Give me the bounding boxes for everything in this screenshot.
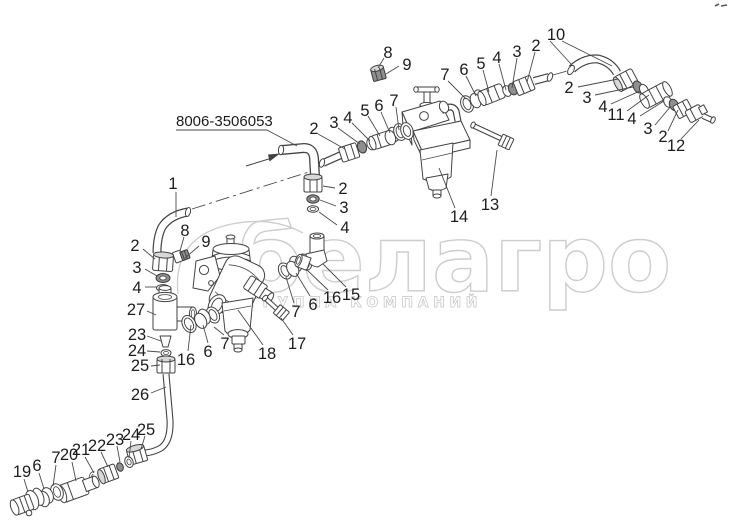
callout-8: 8: [383, 44, 392, 62]
callout-7: 7: [440, 66, 449, 84]
callout-9: 9: [201, 233, 210, 251]
leader-line-3: [655, 106, 671, 125]
leader-line-2: [578, 79, 618, 87]
callout-3: 3: [329, 114, 338, 132]
callout-7: 7: [220, 335, 229, 353]
part-number-label: 8006-3506053: [176, 113, 297, 146]
leader-line-3: [595, 87, 633, 95]
leader-line-7: [214, 327, 224, 335]
callout-4: 4: [627, 110, 636, 128]
callout-3: 3: [643, 120, 652, 138]
callout-3: 3: [132, 259, 141, 277]
corner-artifact: [715, 4, 727, 6]
callout-9: 9: [402, 56, 411, 74]
callout-16: 16: [177, 351, 195, 369]
callout-19: 19: [13, 463, 31, 481]
callout-6: 6: [374, 97, 383, 115]
leader-line-21: [85, 457, 94, 473]
leader-line-3: [338, 128, 360, 144]
top-elbow-assembly: [278, 145, 322, 212]
callout-2: 2: [531, 37, 540, 55]
callout-25: 25: [137, 421, 155, 439]
callout-4: 4: [340, 219, 349, 237]
leader-line-7: [53, 465, 56, 486]
leader-line-6: [39, 473, 44, 489]
leader-line-2: [668, 110, 678, 131]
leader-line-10: [550, 41, 571, 64]
part-number-text: 8006-3506053: [176, 113, 273, 130]
leader-line-13: [491, 150, 497, 196]
callout-11: 11: [607, 106, 624, 124]
leader-line-5: [368, 116, 380, 136]
leader-line-23: [147, 336, 161, 341]
callout-3: 3: [582, 89, 591, 107]
leader-line-24: [147, 351, 160, 352]
callout-4: 4: [132, 279, 141, 297]
callout-15: 15: [342, 286, 360, 304]
pipe-10: [566, 59, 617, 76]
leader-line-2: [323, 186, 335, 188]
leader-line-20: [72, 462, 76, 481]
leader-line-6: [381, 112, 390, 133]
callout-5: 5: [476, 55, 485, 73]
bolt-13: [470, 121, 514, 150]
leader-line-9: [386, 66, 399, 74]
callout-25: 25: [131, 357, 149, 375]
leader-line-2: [318, 134, 345, 149]
callout-22: 22: [88, 437, 106, 455]
callout-2: 2: [130, 237, 139, 255]
callout-6: 6: [459, 61, 468, 79]
plug-8-9: [370, 64, 386, 82]
callout-16: 16: [323, 289, 341, 307]
callout-6: 6: [308, 296, 317, 314]
callout-14: 14: [450, 208, 468, 226]
leader-line-6: [466, 76, 476, 96]
callout-13: 13: [481, 196, 499, 214]
callout-27: 27: [127, 301, 145, 319]
callout-2: 2: [338, 180, 347, 198]
callout-1: 1: [168, 175, 177, 193]
callout-4: 4: [343, 109, 352, 127]
callout-7: 7: [291, 303, 300, 321]
leader-line-4: [352, 123, 370, 141]
callout-6: 6: [203, 343, 212, 361]
callout-12: 12: [667, 137, 685, 155]
callout-4: 4: [598, 98, 607, 116]
leader-line-26: [151, 387, 166, 393]
callout-18: 18: [258, 345, 276, 363]
callout-2: 2: [309, 120, 318, 138]
flow-arrow: [246, 154, 280, 167]
callout-6: 6: [32, 457, 41, 475]
leader-line-7: [448, 81, 466, 99]
callout-2: 2: [564, 79, 573, 97]
fuel-filter-14: [399, 87, 470, 198]
parts-diagram: белагро ГРУППА КОМПАНИЙ: [0, 0, 730, 528]
callout-7: 7: [389, 92, 398, 110]
callout-26: 26: [131, 386, 149, 404]
callout-8: 8: [180, 222, 189, 240]
callout-5: 5: [360, 102, 369, 120]
callout-10: 10: [547, 26, 565, 44]
callout-3: 3: [512, 43, 521, 61]
callout-3: 3: [339, 199, 348, 217]
callout-4: 4: [492, 49, 501, 67]
leader-line-4: [611, 91, 640, 104]
callout-17: 17: [288, 335, 306, 353]
